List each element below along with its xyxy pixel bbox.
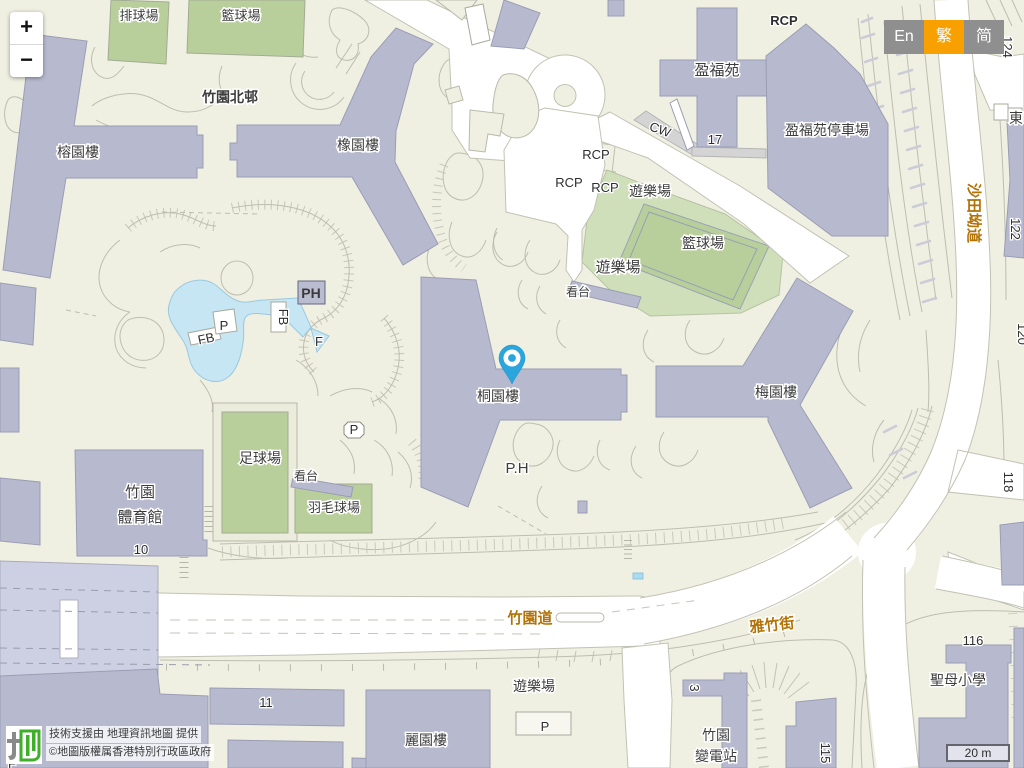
svg-text:P.H: P.H bbox=[505, 460, 528, 477]
svg-text:看台: 看台 bbox=[566, 284, 590, 299]
svg-text:籃球場: 籃球場 bbox=[682, 235, 724, 251]
svg-text:變電站: 變電站 bbox=[695, 748, 737, 764]
svg-text:遊樂場: 遊樂場 bbox=[629, 183, 671, 199]
svg-text:竹園北邨: 竹園北邨 bbox=[201, 89, 258, 105]
svg-text:116: 116 bbox=[963, 633, 984, 648]
svg-text:P: P bbox=[350, 422, 359, 437]
svg-text:115: 115 bbox=[818, 743, 833, 764]
svg-text:籃球場: 籃球場 bbox=[221, 8, 260, 23]
svg-text:沙田坳道: 沙田坳道 bbox=[965, 183, 983, 243]
svg-text:3: 3 bbox=[687, 684, 702, 691]
svg-text:竹園: 竹園 bbox=[702, 727, 730, 743]
svg-text:足球場: 足球場 bbox=[239, 450, 281, 466]
svg-text:RCP: RCP bbox=[591, 180, 618, 195]
svg-text:P: P bbox=[220, 318, 229, 333]
svg-text:體育館: 體育館 bbox=[117, 509, 162, 526]
svg-text:10: 10 bbox=[134, 542, 148, 557]
svg-text:122: 122 bbox=[1008, 218, 1023, 240]
svg-text:120: 120 bbox=[1015, 323, 1024, 345]
svg-text:排球場: 排球場 bbox=[119, 8, 158, 23]
svg-text:盈福苑停車場: 盈福苑停車場 bbox=[785, 122, 869, 138]
svg-text:P: P bbox=[541, 719, 550, 734]
svg-text:梅園樓: 梅園樓 bbox=[755, 384, 797, 400]
svg-text:橡園樓: 橡園樓 bbox=[337, 137, 379, 153]
svg-text:遊樂場: 遊樂場 bbox=[513, 678, 555, 694]
svg-text:桐園樓: 桐園樓 bbox=[477, 388, 519, 404]
svg-text:遊樂場: 遊樂場 bbox=[595, 259, 640, 276]
svg-text:F: F bbox=[315, 334, 323, 349]
svg-text:RCP: RCP bbox=[555, 175, 582, 190]
svg-text:盈福苑: 盈福苑 bbox=[694, 62, 739, 79]
svg-text:竹園: 竹園 bbox=[125, 484, 155, 501]
svg-text:羽毛球場: 羽毛球場 bbox=[308, 500, 360, 515]
svg-text:竹園道: 竹園道 bbox=[506, 609, 552, 627]
svg-text:RCP: RCP bbox=[582, 147, 609, 162]
svg-text:FB: FB bbox=[276, 309, 291, 326]
svg-text:東: 東 bbox=[1009, 110, 1023, 126]
svg-text:麗園樓: 麗園樓 bbox=[405, 732, 447, 748]
svg-text:PH: PH bbox=[301, 285, 320, 301]
svg-text:聖母小學: 聖母小學 bbox=[930, 672, 986, 688]
svg-text:RCP: RCP bbox=[770, 13, 798, 28]
svg-text:看台: 看台 bbox=[294, 468, 318, 483]
svg-text:11: 11 bbox=[259, 695, 273, 710]
svg-text:118: 118 bbox=[1001, 472, 1016, 493]
svg-text:榕園樓: 榕園樓 bbox=[57, 144, 99, 160]
svg-text:17: 17 bbox=[708, 132, 722, 147]
